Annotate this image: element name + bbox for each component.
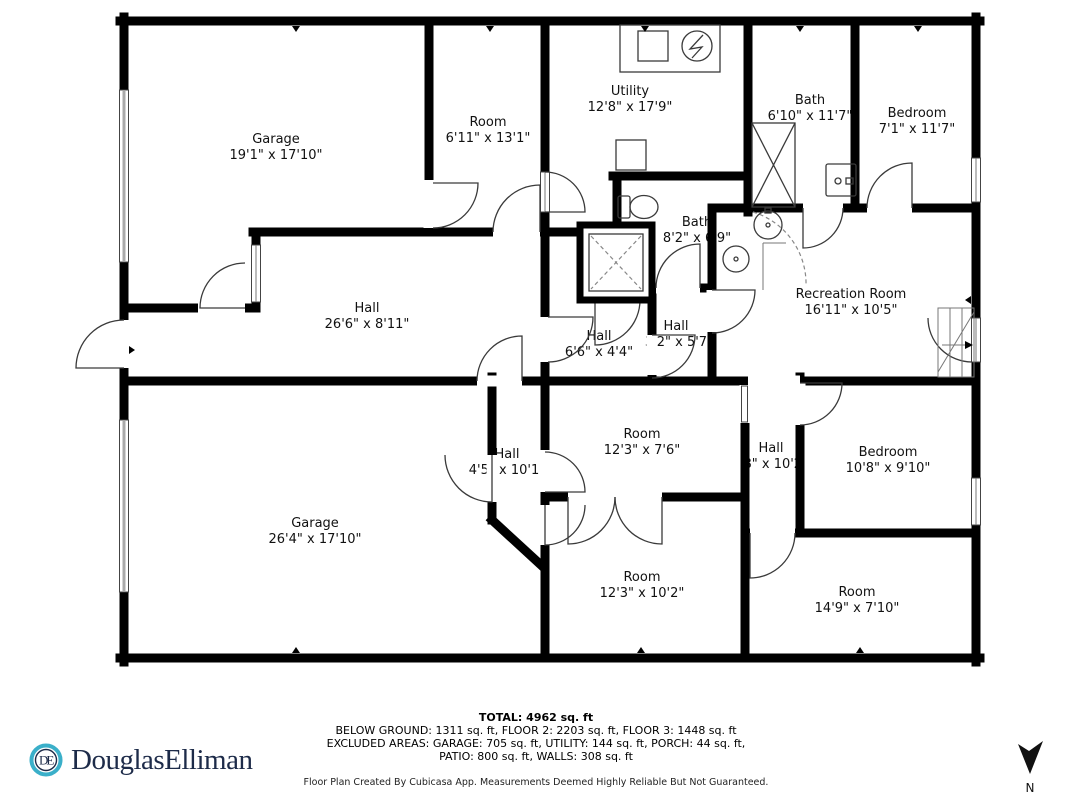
room-label-garage-upper: Garage19'1" x 17'10" (230, 132, 323, 163)
water-heater-icon (616, 140, 646, 170)
floor-plan-page: Garage19'1" x 17'10" Room6'11" x 13'1" U… (0, 0, 1072, 804)
washer-dryer-icon (620, 25, 720, 72)
room-label-hall-3-2: Hall3'2" x 5'7 (645, 319, 707, 350)
stairs-icon (938, 308, 974, 377)
elevator-icon (580, 225, 652, 300)
room-label-bedroom-lower: Bedroom10'8" x 9'10" (846, 445, 931, 476)
round-sink-icon (754, 208, 782, 239)
room-label-room-12-3a: Room12'3" x 7'6" (604, 427, 680, 458)
logo-monogram-icon: DE (28, 742, 64, 778)
douglas-elliman-logo: DE DouglasElliman (28, 742, 252, 778)
garage-door-window-icon (120, 90, 129, 262)
room-label-bath-middle: Bath8'2" x 6'9" (663, 215, 731, 246)
room-label-hall-8: Hall'8" x 10'2 (740, 441, 802, 472)
shower-icon (752, 123, 795, 207)
round-sink-icon (723, 246, 749, 272)
sink-icon (826, 164, 856, 196)
north-arrow-icon (1015, 738, 1045, 776)
room-label-recreation-room: Recreation Room16'11" x 10'5" (796, 287, 907, 318)
garage-door-window-icon (120, 420, 129, 592)
window-icon (541, 172, 550, 212)
room-label-utility: Utility12'8" x 17'9" (588, 84, 673, 115)
fixtures (580, 25, 974, 377)
toilet-icon (618, 196, 658, 219)
door-arcs (76, 163, 972, 578)
credit-note: Floor Plan Created By Cubicasa App. Meas… (0, 777, 1072, 788)
room-label-room-12-3b: Room12'3" x 10'2" (600, 570, 685, 601)
room-label-room-14-9: Room14'9" x 7'10" (815, 585, 900, 616)
windows (120, 90, 981, 592)
room-label-hall-main: Hall26'6" x 8'11" (325, 301, 410, 332)
compass: N (1008, 738, 1052, 795)
window-icon (972, 158, 981, 202)
room-label-bedroom-upper: Bedroom7'1" x 11'7" (879, 106, 955, 137)
north-label: N (1008, 781, 1052, 795)
logo-wordmark: DouglasElliman (71, 744, 252, 777)
window-icon (972, 318, 981, 362)
total-area: TOTAL: 4962 sq. ft (0, 711, 1072, 724)
room-label-hall-4-5: Hall4'5" x 10'1" (469, 447, 545, 478)
floor-areas: BELOW GROUND: 1311 sq. ft, FLOOR 2: 2203… (0, 724, 1072, 737)
room-label-garage-lower: Garage26'4" x 17'10" (269, 516, 362, 547)
room-label-bath-upper: Bath6'10" x 11'7" (768, 93, 853, 124)
svg-text:DE: DE (39, 753, 54, 768)
room-label-room-6-11: Room6'11" x 13'1" (446, 115, 531, 146)
door-leaf-icon (742, 386, 748, 422)
wall-openings (119, 172, 913, 545)
room-label-hall-6-6: Hall6'6" x 4'4" (565, 329, 633, 360)
window-icon (252, 245, 261, 302)
window-icon (972, 478, 981, 525)
